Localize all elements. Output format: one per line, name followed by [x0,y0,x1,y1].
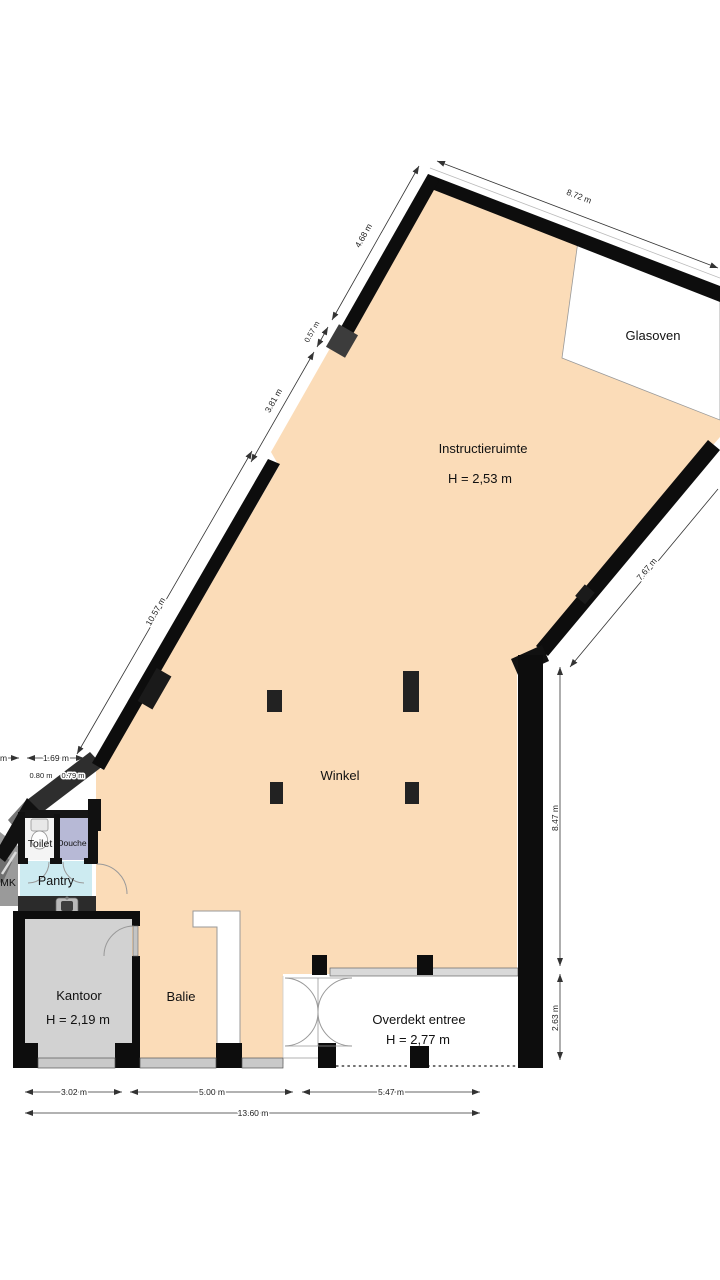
pantry-wall-seg2 [50,858,62,864]
kantoor-top-wall [13,911,140,919]
kantoor-pillar-bl [13,1043,38,1068]
winkel-pillar-4 [405,782,419,804]
room-label-overdekt-entree: Overdekt entree [372,1012,465,1027]
room-label-instructieruimte: Instructieruimte [439,441,528,456]
room-label-douche: Douche [57,838,87,848]
dim-label-302: 3.02 m [61,1087,87,1097]
room-label-winkel: Winkel [320,768,359,783]
dim-label-top-wall: 8.72 m [565,187,593,206]
wall-right [518,655,543,1068]
room-label-pantry: Pantry [38,874,75,888]
toilet-tank [31,819,48,831]
dim-label-847: 8.47 m [550,805,560,831]
room-label-glasoven: Glasoven [626,328,681,343]
kantoor-right-wall-lower [132,956,140,1050]
kantoor-door-leaf [133,926,138,956]
entree-pillar [410,1046,429,1068]
kantoor-pillar-br [115,1043,140,1068]
room-label-mk: MK [0,877,16,889]
room-height-overdekt-entree: H = 2,77 m [386,1032,450,1047]
room-height-instructieruimte: H = 2,53 m [448,471,512,486]
door-post-top [312,955,327,975]
dim-label-left-cut: m [0,753,7,763]
dim-label-500: 5.00 m [199,1087,225,1097]
pantry-wall-seg1 [18,858,28,864]
sink-bowl [61,901,73,911]
room-height-kantoor: H = 2,19 m [46,1012,110,1027]
dim-label-1057: 10.57 m [143,596,167,628]
kantoor-right-wall-upper [132,911,140,926]
winkel-pillar-1 [267,690,282,712]
room-label-balie: Balie [167,989,196,1004]
kantoor-window-sill [38,1058,115,1068]
pantry-wall-seg3 [84,858,96,864]
sink-tap [65,896,68,899]
dim-label-468: 4.68 m [353,222,375,250]
shopfront-pillar [417,955,433,975]
winkel-pillar-2 [403,671,419,712]
rooms-left-wall [18,812,25,864]
winkel-pillar-3 [270,782,283,804]
door-post-bottom [318,1043,336,1068]
dim-label-263: 2.63 m [550,1005,560,1031]
balie-sill-right [242,1058,283,1068]
dim-label-079: 0.79 m [62,771,85,780]
counter-pillar [216,1043,242,1068]
dim-label-080: 0.80 m [30,771,53,780]
floor-plan-svg: 8.72 m 4.68 m 0.57 m 3.81 m 10.57 m 7.67… [0,0,720,1280]
dim-line-057 [317,327,328,347]
room-label-toilet: Toilet [28,838,53,850]
dim-label-767: 7.67 m [635,556,659,582]
wall-pillar-bump [88,799,101,831]
balie-sill-left [140,1058,216,1068]
dim-label-057: 0.57 m [302,320,321,344]
dim-label-169: 1.69 m [43,753,69,763]
dim-label-1360: 13.60 m [238,1108,269,1118]
dim-label-547: 5.47 m [378,1087,404,1097]
room-label-kantoor: Kantoor [56,988,102,1003]
